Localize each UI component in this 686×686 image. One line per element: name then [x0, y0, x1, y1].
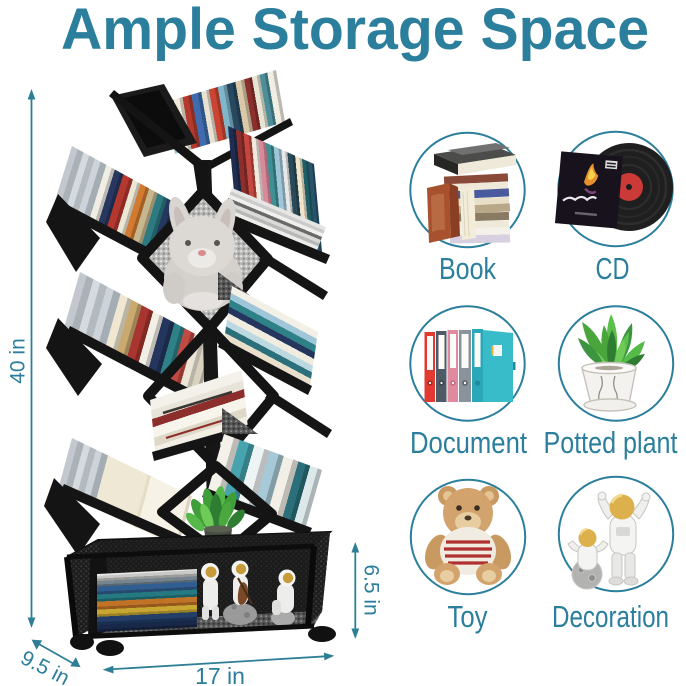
svg-text:Book: Book	[439, 251, 496, 286]
svg-text:17 in: 17 in	[195, 663, 245, 686]
svg-text:Decoration: Decoration	[552, 599, 669, 634]
svg-text:Document: Document	[410, 425, 527, 460]
svg-text:CD: CD	[596, 251, 630, 286]
svg-text:9.5 in: 9.5 in	[17, 646, 73, 686]
svg-text:Potted plant: Potted plant	[544, 425, 678, 460]
svg-text:Toy: Toy	[448, 599, 488, 634]
svg-text:Ample Storage Space: Ample Storage Space	[61, 0, 649, 62]
svg-text:40 in: 40 in	[7, 338, 30, 384]
svg-text:6.5 in: 6.5 in	[360, 564, 383, 615]
